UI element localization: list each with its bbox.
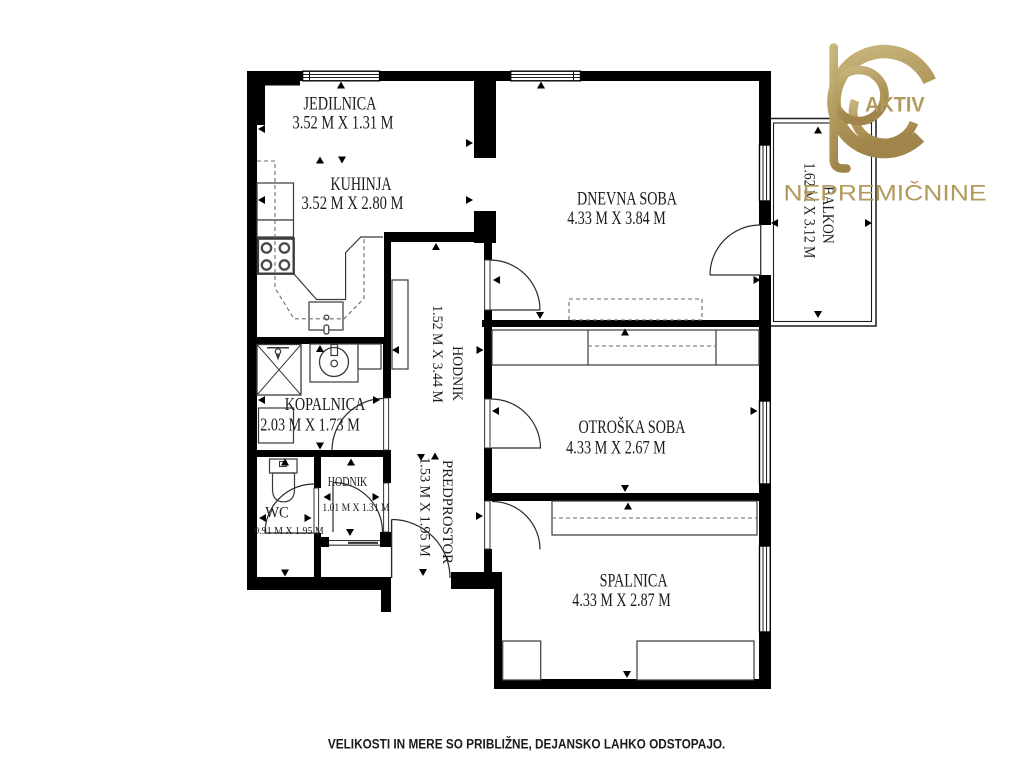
svg-text:0.91 M X 1.95 M: 0.91 M X 1.95 M <box>254 526 324 537</box>
svg-text:OTROŠKA SOBA: OTROŠKA SOBA <box>579 416 686 438</box>
svg-text:VELIKOSTI IN MERE SO PRIBLIŽNE: VELIKOSTI IN MERE SO PRIBLIŽNE, DEJANSKO… <box>328 737 726 752</box>
svg-text:SPALNICA: SPALNICA <box>600 571 668 591</box>
svg-text:PREDPROSTOR: PREDPROSTOR <box>439 460 455 564</box>
svg-text:1.62 M X 3.12 M: 1.62 M X 3.12 M <box>801 163 818 259</box>
svg-text:NEPREMIČNINE: NEPREMIČNINE <box>784 181 987 206</box>
svg-text:KOPALNICA: KOPALNICA <box>285 394 366 414</box>
svg-text:3.52 M X 1.31 M: 3.52 M X 1.31 M <box>293 113 394 133</box>
svg-text:JEDILNICA: JEDILNICA <box>304 94 377 114</box>
svg-text:1.53 M X 1.95 M: 1.53 M X 1.95 M <box>417 457 433 557</box>
svg-text:2.03 M X 1.73 M: 2.03 M X 1.73 M <box>260 414 360 434</box>
svg-text:DNEVNA SOBA: DNEVNA SOBA <box>577 190 677 210</box>
svg-text:1.01 M X 1.31 M: 1.01 M X 1.31 M <box>322 500 389 514</box>
svg-text:HODNIK: HODNIK <box>328 474 368 489</box>
svg-text:4.33 M X 2.67 M: 4.33 M X 2.67 M <box>566 438 666 458</box>
svg-text:HODNIK: HODNIK <box>449 346 465 401</box>
svg-text:1.52 M X 3.44 M: 1.52 M X 3.44 M <box>429 305 445 403</box>
svg-text:WC: WC <box>265 504 288 521</box>
svg-text:AKTIV: AKTIV <box>865 94 925 117</box>
svg-text:3.52 M X 2.80 M: 3.52 M X 2.80 M <box>302 194 404 214</box>
svg-text:4.33 M X 3.84 M: 4.33 M X 3.84 M <box>567 209 666 229</box>
svg-text:KUHINJA: KUHINJA <box>331 175 392 195</box>
svg-text:4.33 M X 2.87 M: 4.33 M X 2.87 M <box>572 591 670 611</box>
